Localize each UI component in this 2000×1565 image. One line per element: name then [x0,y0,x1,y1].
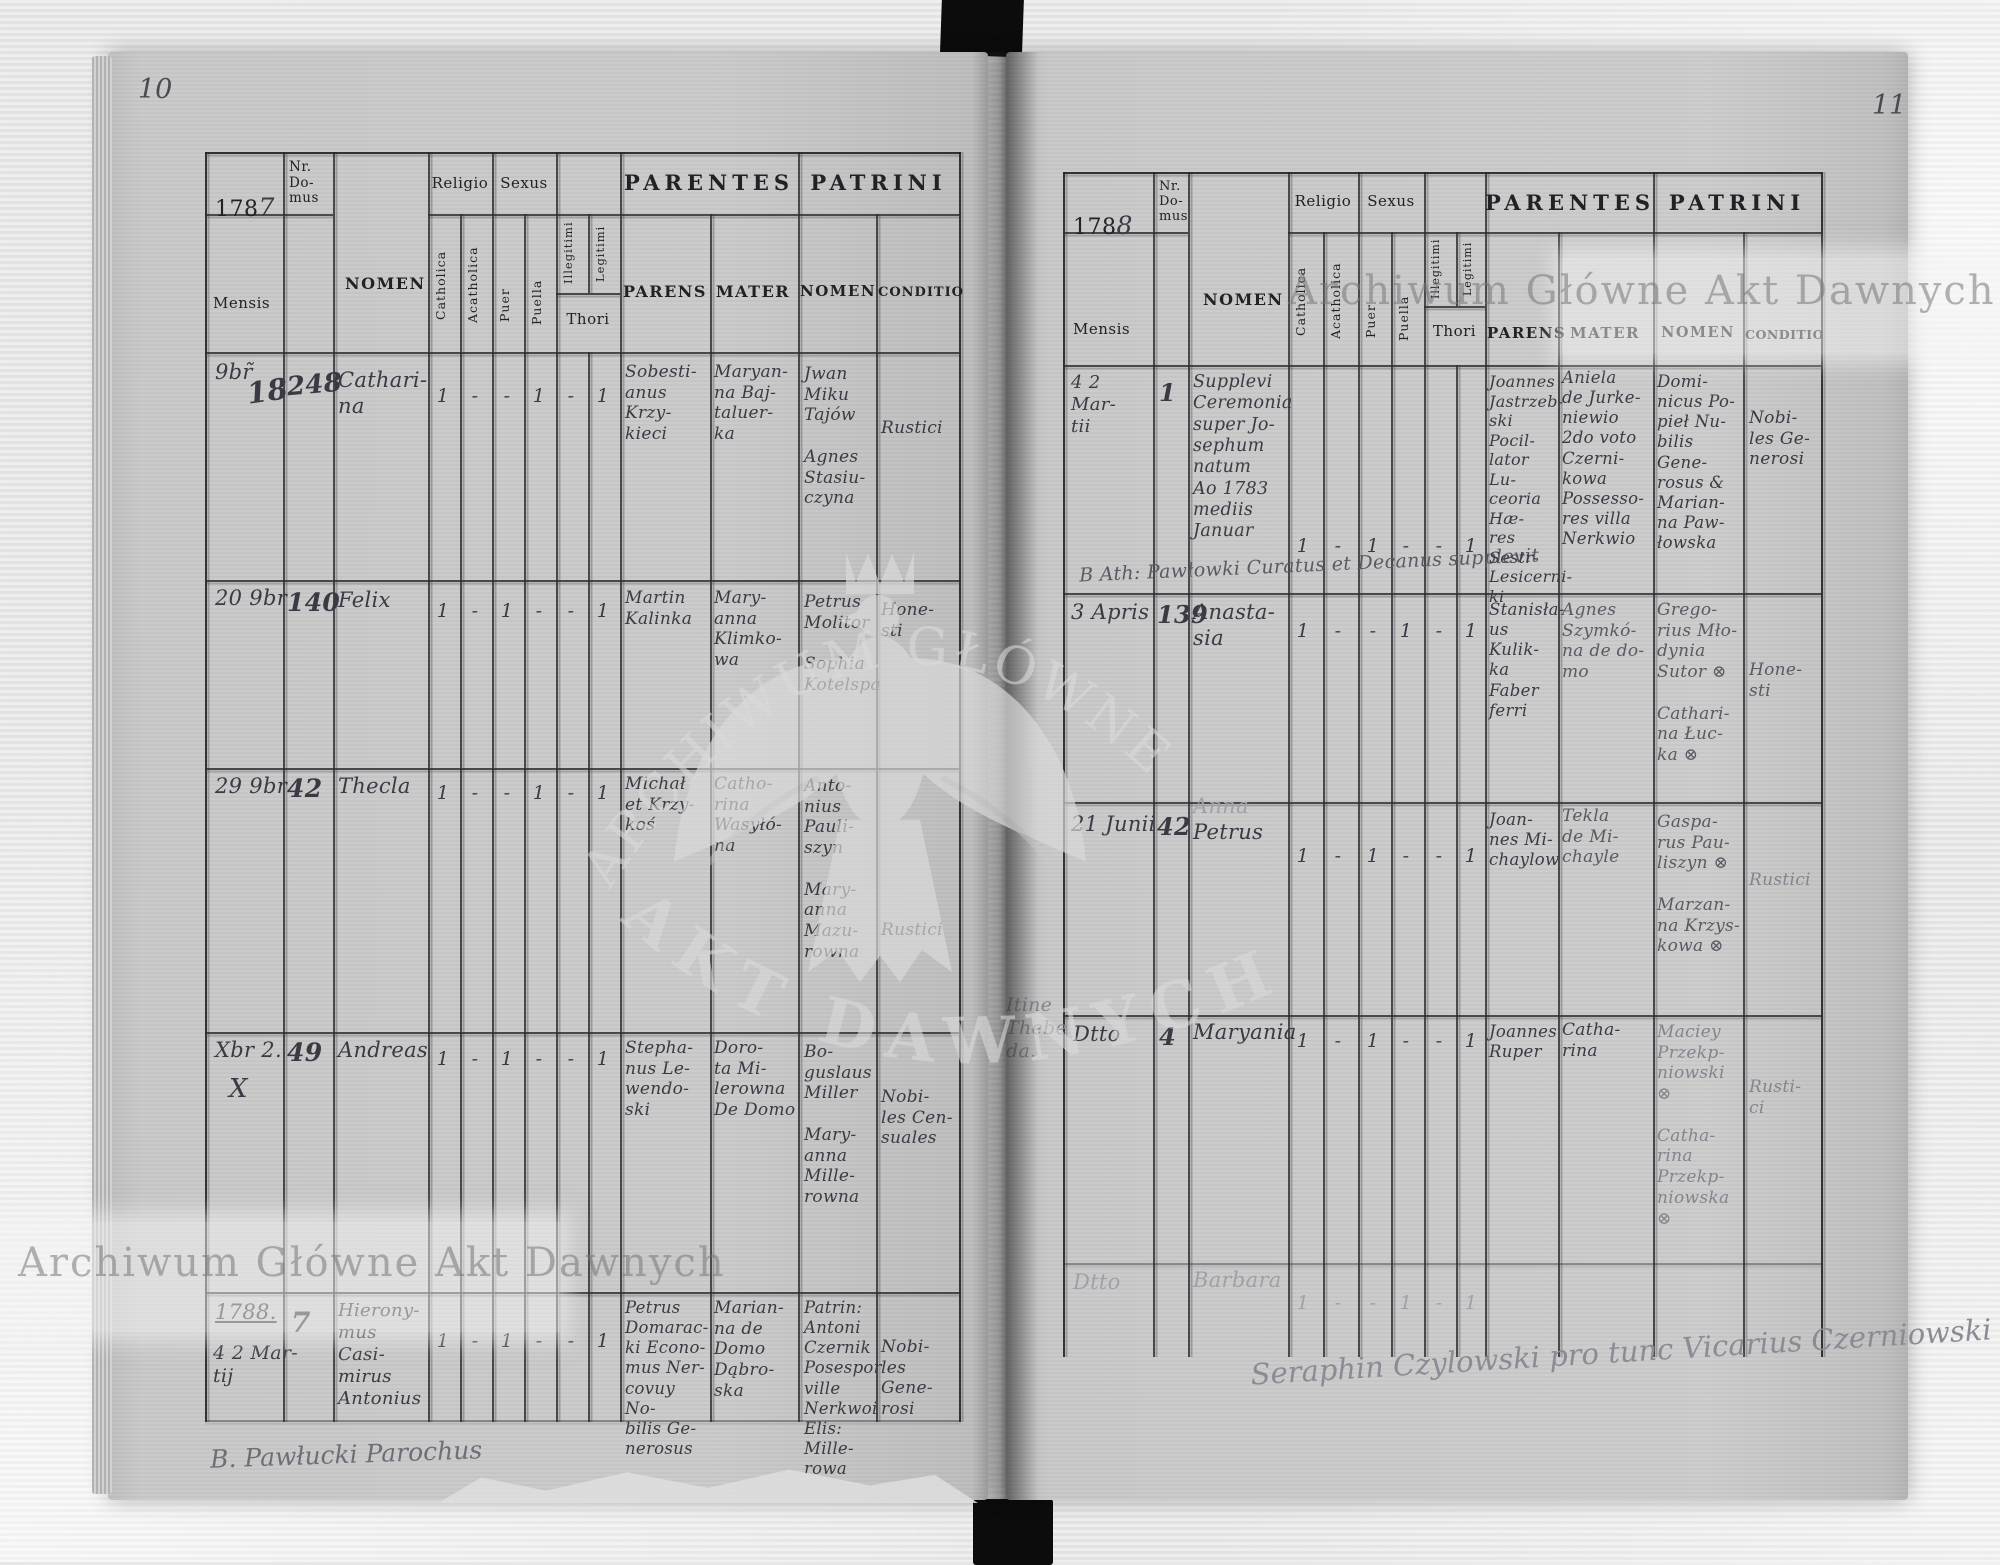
mark-legitimi: 1 [588,385,618,408]
grid-line [205,1032,961,1034]
grid-line [1323,232,1325,1357]
mark-puer: - [492,385,522,408]
col-header-legitimi: Legitimi [593,218,607,290]
mark-puer: 1 [1358,845,1388,868]
page-number-left: 10 [138,74,172,105]
grid-line [1063,172,1065,1357]
cell-nr-domus: 1 [1159,378,1176,407]
cell-nomen: Petrus [1193,820,1287,846]
cell-patrini-nomen: Patrin: Antoni Czernik Posespor ville Ne… [804,1298,876,1479]
cell-parens: Stanisła- us Kulik- ka Faber ferri [1489,600,1557,721]
mark-catholica: 1 [428,1330,458,1353]
grid-line [1063,593,1823,595]
col-header-patrini: PATRINI [798,170,959,196]
mark-illegitimi: - [556,1330,586,1353]
mark-acatholica: - [460,782,490,805]
mark-illegitimi: - [556,782,586,805]
priest-signature-left: B. Pawłucki Parochus [210,1435,483,1473]
col-header-religio: Religio [1288,192,1358,210]
cell-mater: Maryan- na Baj- taluer- ka [714,362,796,445]
col-header-parentes: PARENTES [620,170,798,196]
cell-mater: Mary- anna Klimko- wa [714,588,796,671]
grid-line [1063,365,1823,367]
mark-illegitimi: - [556,600,586,623]
cell-conditio: Hone- sti [1749,660,1819,701]
col-header-sexus: Sexus [492,174,556,192]
cell-parens: Joannes Ruper [1489,1022,1557,1062]
cell-patrini-nomen: Grego- rius Mło- dynia Sutor ⊗ Cathari- … [1657,600,1741,766]
cell-mensis-day: 18 [245,371,290,412]
mark-puella: - [524,1330,554,1353]
mark-puer: 1 [492,1048,522,1071]
year-label: 1788 [1073,184,1133,242]
year-written-digit: 7 [259,193,275,222]
col-header-religio: Religio [428,174,492,192]
grid-line [1188,172,1190,1357]
cell-mensis: Xbr 2. [215,1038,282,1064]
cell-mater: Doro- ta Mi- lerowna De Domo [714,1038,796,1121]
cell-nr-domus: 248 [286,368,344,404]
year-label: 1787 [215,166,275,224]
col-header-puer: Puer [497,262,512,348]
mark-illegitimi: - [1424,1030,1454,1053]
cell-nomen: Felix [338,588,426,614]
torn-page-edge [438,1459,978,1503]
grid-line [1063,1263,1823,1265]
mark-puer: - [1358,1292,1388,1315]
cell-patrini-nomen: Bo- guslaus Miller Mary- anna Mille- row… [804,1042,874,1208]
grid-line [428,214,961,216]
cell-nr-domus: 4 [1159,1022,1176,1051]
mark-acatholica: - [460,1048,490,1071]
col-header-mensis: Mensis [213,294,270,312]
cell-mater: Marian- na de Domo Dąbro- ska [714,1298,796,1402]
cell-nr-domus: 49 [287,1038,322,1069]
cell-nr-domus: 42 [287,774,322,805]
grid-line [1743,232,1745,1357]
cell-nomen: Anasta- sia [1193,600,1287,651]
mark-legitimi: 1 [1456,1292,1486,1315]
year-printed: 178 [215,197,259,222]
cell-mensis: 21 Junii [1071,812,1156,838]
col-header-nomen: NOMEN [345,274,426,294]
cell-mensis: Dtto [1073,1022,1121,1048]
grid-line [1485,172,1487,1357]
cell-conditio: Rustici [1749,870,1819,891]
cell-nomen: Barbara [1193,1268,1287,1294]
cell-mensis-mark: X [229,1074,248,1106]
col-header-parens: PARENS [1487,324,1557,342]
col-header-nr-domus: Nr. Do- mus [289,160,331,207]
cell-nomen: Supplevi Ceremonia super Jo- sephum natu… [1193,372,1287,543]
mark-illegitimi: - [1424,845,1454,868]
mark-catholica: 1 [428,600,458,623]
mark-catholica: 1 [1288,620,1318,643]
col-header-sexus: Sexus [1358,192,1424,210]
mark-puer: 1 [492,600,522,623]
mark-puer: 1 [1358,1030,1388,1053]
col-header-mensis: Mensis [1073,320,1130,338]
mark-puella: - [524,1048,554,1071]
page-number-right: 11 [1872,90,1906,121]
mark-legitimi: 1 [588,782,618,805]
archive-watermark-bottom: Archiwum Główne Akt Dawnych [18,1240,726,1286]
cell-nomen: Cathari- na [338,368,426,419]
mark-puella: 1 [524,385,554,408]
mark-puella: - [1391,845,1421,868]
col-header-nr-domus: Nr. Do- mus [1159,180,1199,225]
mark-illegitimi: - [556,1048,586,1071]
cell-parens: Joannes Jastrzeb- ski Pocil- lator Lu- c… [1489,372,1557,606]
cell-patrini-nomen: Petrus Molitor Sophia Kotelspa [804,592,874,696]
mark-acatholica: - [1323,620,1353,643]
grid-line [798,152,800,1422]
cell-nomen: Maryania [1193,1020,1287,1046]
cell-patrini-nomen: Domi- nicus Po- pieł Nu- bilis Gene- ros… [1657,372,1741,553]
cell-parens: Joan- nes Mi- chaylow [1489,810,1557,870]
cell-nomen-faded: Anna [1193,794,1249,820]
cell-nr-domus: 42 [1157,812,1191,841]
mark-catholica: 1 [428,385,458,408]
mark-catholica: 1 [428,782,458,805]
mark-catholica: 1 [1288,1292,1318,1315]
grid-line [1063,1015,1823,1017]
grid-line [1424,172,1426,1357]
mark-puella: 1 [1391,620,1421,643]
cell-conditio: Nobi- les Cen- suales [881,1087,957,1149]
cell-parens: Martin Kalinka [625,588,709,629]
col-header-catholica: Catholica [433,222,448,348]
cell-parens: Petrus Domarac- ki Econo- mus Ner- covuy… [625,1298,709,1459]
year-printed: 178 [1073,215,1117,240]
cell-nomen: Thecla [338,774,426,800]
mark-acatholica: - [460,1330,490,1353]
mark-puella: - [524,600,554,623]
col-header-puella: Puella [529,256,544,348]
col-header-conditio: CONDITIO [878,285,958,301]
grid-line [620,152,622,1422]
mark-acatholica: - [1323,845,1353,868]
mark-puer: - [1358,620,1388,643]
cell-conditio: Hone- sti [881,600,957,641]
grid-line [1358,172,1360,1357]
grid-line [205,768,961,770]
cell-parens: Michał et Krzy- koś [625,774,709,836]
cell-patrini-nomen: Jwan Miku Tajów Agnes Stasiu- czyna [804,364,874,509]
mark-legitimi: 1 [1456,845,1486,868]
mark-acatholica: - [1323,1030,1353,1053]
grid-line [556,293,620,295]
grid-line [205,352,961,354]
mark-catholica: 1 [1288,845,1318,868]
cell-parens: Stepha- nus Le- wendo- ski [625,1038,709,1121]
grid-line [1063,802,1823,804]
cell-mater: Aniela de Jurke- niewio 2do voto Czerni-… [1562,368,1652,549]
col-header-parens: PARENS [622,282,708,302]
cell-mater: Catho- rina Wasyłó- na [714,774,796,857]
cell-conditio: Nobi- les Ge- nerosi [1749,408,1819,470]
grid-line [1063,172,1823,174]
cell-mensis: 4 2 Mar- tij [213,1342,298,1388]
mark-catholica: 1 [1288,1030,1318,1053]
margin-note: Itine Thebe da. [1006,994,1066,1064]
year-written-digit: 8 [1117,211,1133,240]
mark-puella: - [1391,1030,1421,1053]
grid-line [205,580,961,582]
cell-parens: Sobesti- anus Krzy- kieci [625,362,709,445]
cell-mensis: 3 Apris [1071,600,1149,626]
cell-nomen: Andreas [338,1038,426,1064]
mark-legitimi: 1 [588,1330,618,1353]
cell-conditio: Nobi- les Gene- rosi [881,1337,957,1420]
mark-legitimi: 1 [588,600,618,623]
grid-line [1288,172,1290,1357]
col-header-parentes: PARENTES [1485,190,1653,216]
mark-puella: 1 [1391,1292,1421,1315]
archive-watermark-top: Archiwum Główne Akt Dawnych [1288,268,1996,314]
mark-puer: 1 [492,1330,522,1353]
cell-mensis: 4 2 Mar- tii [1071,372,1151,438]
cell-patrini-nomen: Anto- nius Pauli- szyn Mary- anna Mazu- … [804,776,874,963]
cell-conditio: Rustici [881,920,957,941]
cell-patrini-nomen: Gaspa- rus Pau- liszyn ⊗ Marzan- na Krzy… [1657,812,1741,957]
mark-illegitimi: - [556,385,586,408]
cell-mater: Tekla de Mi- chayle [1562,806,1652,868]
spine-marker-top [940,0,1024,57]
cell-mensis: Dtto [1073,1270,1121,1296]
mark-acatholica: - [1323,1292,1353,1315]
col-header-patrini-nomen: NOMEN [800,282,874,300]
cell-mensis: 20 9br [215,586,287,612]
cell-mensis: 29 9br [215,774,287,800]
mark-acatholica: - [460,385,490,408]
mark-legitimi: 1 [1456,620,1486,643]
grid-line [1288,232,1823,234]
grid-line [1153,172,1155,1357]
cell-conditio: Rusti- ci [1749,1077,1819,1118]
grid-line [876,214,878,1422]
mark-acatholica: - [460,600,490,623]
cell-mater: Catha- rina [1562,1020,1652,1061]
grid-line [1391,232,1393,1357]
col-header-mater: MATER [710,282,796,302]
mark-legitimi: 1 [1456,1030,1486,1053]
col-header-thori: Thori [1424,322,1485,340]
mark-puer: - [492,782,522,805]
grid-line [959,152,961,1422]
cell-supplement-note: B Ath: Pawłowki Curatus et Decanus suppl… [1079,544,1560,588]
mark-illegitimi: - [1424,1292,1454,1315]
spine-marker-bottom [973,1499,1053,1565]
col-header-acatholica: Acatholica [465,222,480,348]
mark-puella: 1 [524,782,554,805]
col-header-thori: Thori [556,310,620,328]
cell-patrini-nomen: Maciey Przekp- niowski ⊗ Catha- rina Prz… [1657,1022,1741,1229]
cell-conditio: Rustici [881,418,957,439]
col-header-patrini: PATRINI [1653,190,1821,216]
col-header-illegitimi: Illegitimi [561,216,575,290]
col-header-nomen: NOMEN [1203,290,1284,310]
mark-legitimi: 1 [588,1048,618,1071]
mark-catholica: 1 [428,1048,458,1071]
grid-line [588,214,590,293]
grid-line [205,152,961,154]
cell-nr-domus: 140 [287,588,340,619]
cell-mater: Agnes Szymkó- na de do- mo [1562,600,1652,683]
mark-illegitimi: - [1424,620,1454,643]
